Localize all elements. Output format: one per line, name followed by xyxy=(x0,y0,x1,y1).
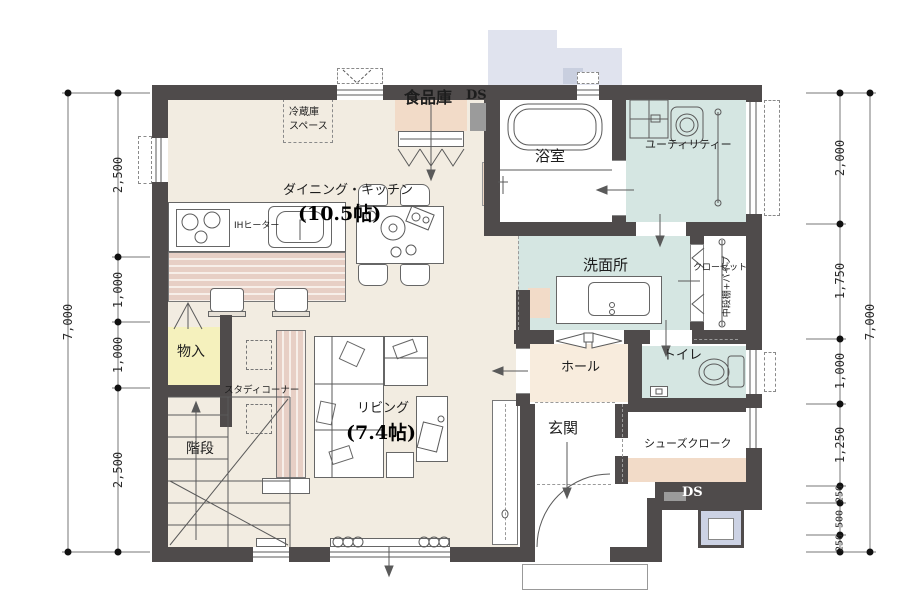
study-desk xyxy=(276,330,306,478)
window-bottom-living xyxy=(330,547,450,562)
dim-right-seg-2: 1,000 xyxy=(833,353,847,389)
dining-chair-3 xyxy=(358,264,388,286)
duct-top-label: DS xyxy=(466,89,487,103)
dining-chair-4 xyxy=(400,264,430,286)
dim-left-seg-1: 1,000 xyxy=(111,272,125,308)
living-label: リビング xyxy=(357,402,409,416)
storage-label: 物入 xyxy=(177,345,205,360)
utility-opening xyxy=(636,222,686,236)
study-chair-1 xyxy=(246,340,272,370)
dim-right-seg-6: 250 xyxy=(835,534,846,552)
hall-sliding-door xyxy=(516,348,530,394)
toilet-label: トイレ xyxy=(663,349,702,363)
toilet-door-track xyxy=(694,339,738,340)
dining-kitchen-label: ダイニング・キッチン xyxy=(283,184,413,198)
entrance-step-line xyxy=(535,402,615,403)
toilet-shelf xyxy=(650,386,668,397)
bar-stool-1 xyxy=(210,288,244,312)
toilet-door xyxy=(650,330,692,344)
wall-wet-bottom-c xyxy=(692,330,762,344)
wall-top xyxy=(152,85,762,100)
dim-right-seg-5: 500 xyxy=(835,510,846,528)
window-top-ldk xyxy=(337,85,383,100)
window-left-surround xyxy=(138,136,152,184)
window-right-toilet xyxy=(746,350,762,394)
pantry-shelf xyxy=(398,131,464,147)
window-left-kitchen xyxy=(152,138,168,182)
wall-wet-bottom-a xyxy=(514,330,554,344)
entrance-shoe-boundary xyxy=(622,404,623,482)
dim-left-total: 7,000 xyxy=(61,304,75,340)
stairs-label: 階段 xyxy=(186,442,214,457)
window-top-bath xyxy=(577,85,599,100)
tv-board xyxy=(416,396,448,462)
exterior-step xyxy=(256,538,286,547)
hall-label: ホール xyxy=(561,361,600,375)
shoe-closet-counter xyxy=(628,458,746,482)
canopy-shape xyxy=(488,28,622,85)
dining-kitchen-size: (10.5帖) xyxy=(298,204,381,225)
fridge-space-label-1: 冷蔵庫 xyxy=(289,107,319,118)
wall-storage-bottom xyxy=(168,385,232,397)
kitchen-bar-counter xyxy=(168,252,346,302)
study-shelf xyxy=(262,478,310,494)
dim-right-total: 7,000 xyxy=(863,304,877,340)
pantry-label: 食品庫 xyxy=(404,89,452,107)
wall-storage-right xyxy=(220,315,232,427)
wall-shoe-top xyxy=(628,398,762,412)
floor-plan: ダイニング・キッチン (10.5帖) リビング (7.4帖) 食品庫 DS 冷蔵… xyxy=(0,0,900,600)
fridge-space-label-2: スペース xyxy=(289,121,328,132)
window-toilet-surround xyxy=(764,352,776,392)
washroom-cabinet xyxy=(528,288,550,318)
study-chair-2 xyxy=(246,404,272,434)
window-bottom-small xyxy=(253,547,289,562)
shoe-closet-label: シューズクローク xyxy=(644,438,731,450)
window-right-shoe xyxy=(746,408,762,448)
study-corner-label: スタディコーナー xyxy=(224,386,299,396)
washroom-label: 洗面所 xyxy=(583,257,628,274)
dim-right-seg-3: 1,250 xyxy=(833,427,847,463)
living-size: (7.4帖) xyxy=(346,423,416,444)
duct-pillar-top xyxy=(470,103,486,131)
dim-left-seg-3: 2,500 xyxy=(111,452,125,488)
dim-right-seg-4: 250 xyxy=(835,485,846,503)
dim-right-seg-0: 2,000 xyxy=(833,140,847,176)
duct-bottom-label: DS xyxy=(682,486,703,500)
bath-door xyxy=(612,160,626,216)
wall-ldk-bath xyxy=(484,85,500,236)
closet-shelf-note-text: 中段棚+パイプ xyxy=(720,255,733,317)
window-right-utility xyxy=(746,102,762,214)
closet-shelf-note: 中段棚+パイプ xyxy=(700,250,752,322)
dim-right-seg-1: 1,750 xyxy=(833,263,847,299)
window-top-surround xyxy=(337,68,383,84)
ih-stove xyxy=(176,209,230,247)
doma-step-line xyxy=(537,484,611,485)
ih-stove-label: IHヒーター xyxy=(234,222,279,232)
wall-wet-bottom-b xyxy=(624,330,650,344)
washroom-double-door-gap xyxy=(554,330,624,344)
living-window-sill xyxy=(330,538,450,547)
porch xyxy=(522,564,648,590)
window-bath-surround xyxy=(577,72,599,84)
partition-centerline xyxy=(505,404,506,540)
utility-floor xyxy=(626,99,746,222)
window-utility-surround xyxy=(764,100,780,216)
utility-label: ユーティリティー xyxy=(645,139,732,151)
wall-wet-horizontal xyxy=(484,222,762,236)
side-table xyxy=(386,452,414,478)
vanity-basin xyxy=(588,282,650,316)
bar-stool-2-base xyxy=(272,311,310,317)
dim-left-seg-0: 2,500 xyxy=(111,157,125,193)
exterior-vent-box-inner xyxy=(708,518,734,540)
washroom-open-boundary xyxy=(518,236,519,330)
dim-left-seg-2: 1,000 xyxy=(111,337,125,373)
ldk-floor xyxy=(166,99,518,547)
bath-label: 浴室 xyxy=(535,148,565,165)
entrance-label: 玄関 xyxy=(548,420,578,437)
wall-entrance-left xyxy=(520,404,535,562)
bar-stool-2 xyxy=(274,288,308,312)
